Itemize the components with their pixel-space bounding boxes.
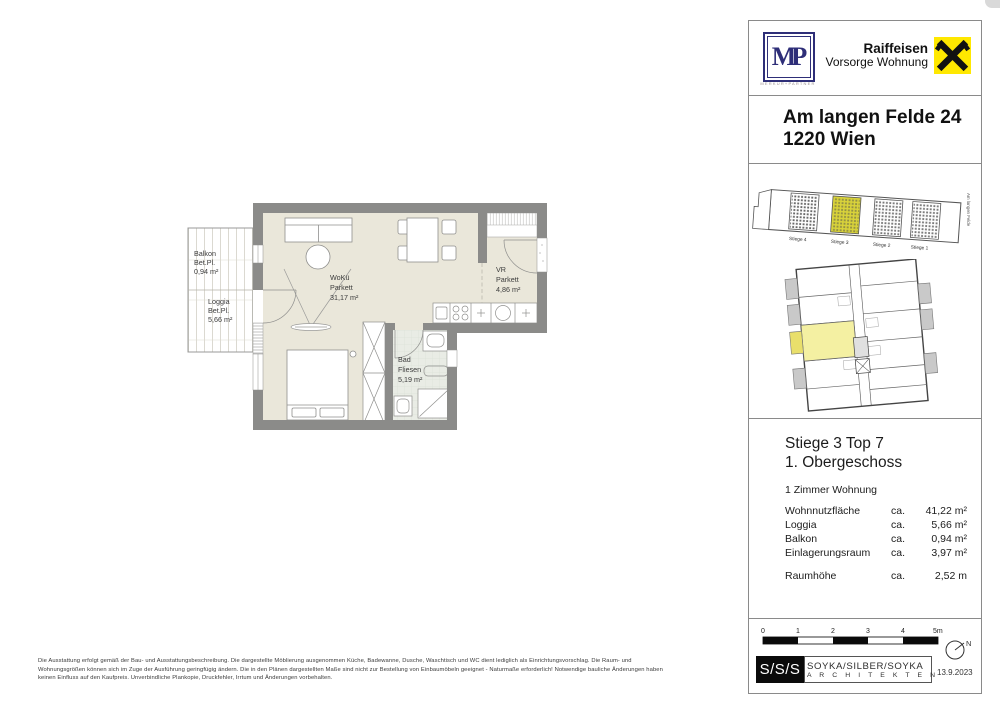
sink-icon	[496, 306, 511, 321]
room-label-loggia: 5,66 m²	[208, 315, 233, 324]
toilet-icon	[394, 396, 412, 416]
street-name-vertical: Am langen Felde	[966, 193, 971, 227]
room-label-bad: Fliesen	[398, 365, 421, 374]
stiege-2-block	[872, 199, 902, 237]
kitchen-counter	[433, 303, 537, 323]
room-label-balkon: Balkon	[194, 249, 216, 258]
room-label-vr: 4,86 m²	[496, 285, 521, 294]
plan-date: 13.9.2023	[937, 668, 973, 683]
unit-title-line1: Stiege 3 Top 7	[785, 434, 902, 453]
room-label-balkon: 0,94 m²	[194, 267, 219, 276]
room-label-balkon: Bet.Pl.	[194, 258, 215, 267]
room-label-bad: Bad	[398, 355, 411, 364]
svg-text:1: 1	[796, 628, 800, 635]
stiege-3-label: Stiege 3	[831, 239, 849, 246]
project-address: Am langen Felde 24 1220 Wien	[783, 107, 961, 151]
area-row: Loggia ca. 5,66 m²	[785, 518, 967, 532]
washbasin-icon	[423, 331, 448, 351]
raiffeisen-logo: Raiffeisen Vorsorge Wohnung	[825, 37, 971, 74]
unit-title: Stiege 3 Top 7 1. Obergeschoss	[785, 434, 902, 472]
unit-type: 1 Zimmer Wohnung	[785, 484, 877, 496]
room-label-loggia: Loggia	[208, 297, 230, 306]
entrance-door-opening	[537, 238, 547, 272]
svg-text:N: N	[966, 639, 971, 648]
wall-niche	[447, 350, 457, 367]
highlighted-unit-balcony	[790, 331, 804, 354]
hob-burner-icon	[462, 306, 468, 312]
unit-title-line2: 1. Obergeschoss	[785, 453, 902, 472]
address-line1: Am langen Felde 24	[783, 107, 961, 129]
raiffeisen-name: Raiffeisen	[825, 41, 928, 57]
title-block-panel: MP MERKUR+PARTNER Raiffeisen Vorsorge Wo…	[748, 20, 982, 694]
stiege-1-block	[910, 202, 940, 240]
loggia-balcony-area	[188, 228, 253, 352]
stairwell	[853, 337, 870, 374]
area-table: Wohnnutzfläche ca. 41,22 m² Loggia ca. 5…	[785, 504, 967, 583]
disclaimer-line: keinen Einfluss auf den Kaufpreis. Unver…	[38, 674, 738, 683]
stiege-2-label: Stiege 2	[873, 242, 891, 249]
highlighted-unit	[801, 321, 857, 361]
disclaimer-line: Die Ausstattung erfolgt gemäß der Bau- u…	[38, 657, 738, 666]
hob-burner-icon	[453, 306, 459, 312]
room-label-woku: WoKü	[330, 273, 349, 282]
raiffeisen-subline: Vorsorge Wohnung	[825, 56, 928, 70]
architect-subtitle: A R C H I T E K T E N	[807, 672, 931, 679]
mp-logo-subtext: MERKUR+PARTNER	[755, 81, 821, 86]
hob-burner-icon	[462, 314, 468, 320]
sss-logo: S/S/S	[756, 656, 804, 683]
scale-bar: 0 1 2 3 4 5m	[757, 624, 947, 652]
mp-logo-letters: MP	[772, 42, 806, 72]
sofa	[285, 218, 352, 242]
architect-block: S/S/S SOYKA/SILBER/SOYKA A R C H I T E K…	[756, 656, 973, 683]
room-label-woku: 31,17 m²	[330, 293, 359, 302]
room-label-woku: Parkett	[330, 283, 353, 292]
room-label-bad: 5,19 m²	[398, 375, 423, 384]
mp-logo: MP	[763, 32, 815, 82]
room-label-vr: Parkett	[496, 275, 519, 284]
svg-text:0: 0	[761, 628, 765, 635]
address-line2: 1220 Wien	[783, 129, 961, 151]
floor-plan-drawing: Balkon Bet.Pl. 0,94 m² Loggia Bet.Pl. 5,…	[180, 190, 570, 440]
door-opening	[253, 290, 263, 323]
stiege-3-block-highlighted	[831, 196, 861, 234]
railing-hatch	[253, 323, 263, 354]
room-height-row: Raumhöhe ca. 2,52 m	[785, 569, 967, 583]
room-label-loggia: Bet.Pl.	[208, 306, 229, 315]
shower-icon	[418, 389, 449, 418]
hob-burner-icon	[453, 314, 459, 320]
svg-text:5m: 5m	[933, 628, 943, 635]
wardrobe-niche	[487, 213, 537, 237]
raiffeisen-gable-cross-icon	[934, 37, 971, 74]
bed	[287, 350, 356, 420]
room-label-vr: VR	[496, 265, 506, 274]
round-table	[306, 245, 330, 269]
site-plan-strip: Stiege 4 Stiege 3 Stiege 2 Stiege 1 Am l…	[752, 179, 978, 255]
stiege-4-label: Stiege 4	[789, 236, 807, 243]
svg-text:2: 2	[831, 628, 835, 635]
stiege-4-block	[789, 193, 819, 231]
key-floor-plan	[777, 259, 957, 415]
area-row: Balkon ca. 0,94 m²	[785, 532, 967, 546]
area-row: Einlagerungsraum ca. 3,97 m²	[785, 546, 967, 560]
disclaimer-line: Wohnungsgrößen können sich im Zuge der A…	[38, 666, 738, 675]
svg-text:3: 3	[866, 628, 870, 635]
screen-corner-artifact	[985, 0, 1000, 8]
wardrobe-cabinet	[363, 322, 385, 425]
architect-name: SOYKA/SILBER/SOYKA	[807, 661, 931, 672]
svg-text:4: 4	[901, 628, 905, 635]
area-row: Wohnnutzfläche ca. 41,22 m²	[785, 504, 967, 518]
stiege-1-label: Stiege 1	[910, 244, 928, 251]
disclaimer-text: Die Ausstattung erfolgt gemäß der Bau- u…	[38, 657, 738, 683]
